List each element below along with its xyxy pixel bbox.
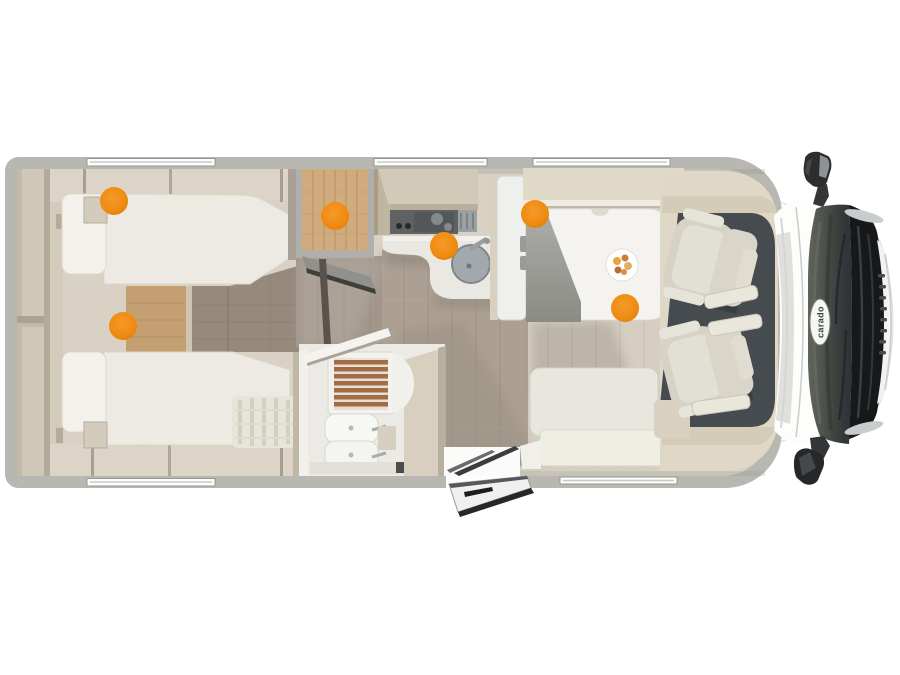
svg-text:carado: carado <box>816 306 826 338</box>
